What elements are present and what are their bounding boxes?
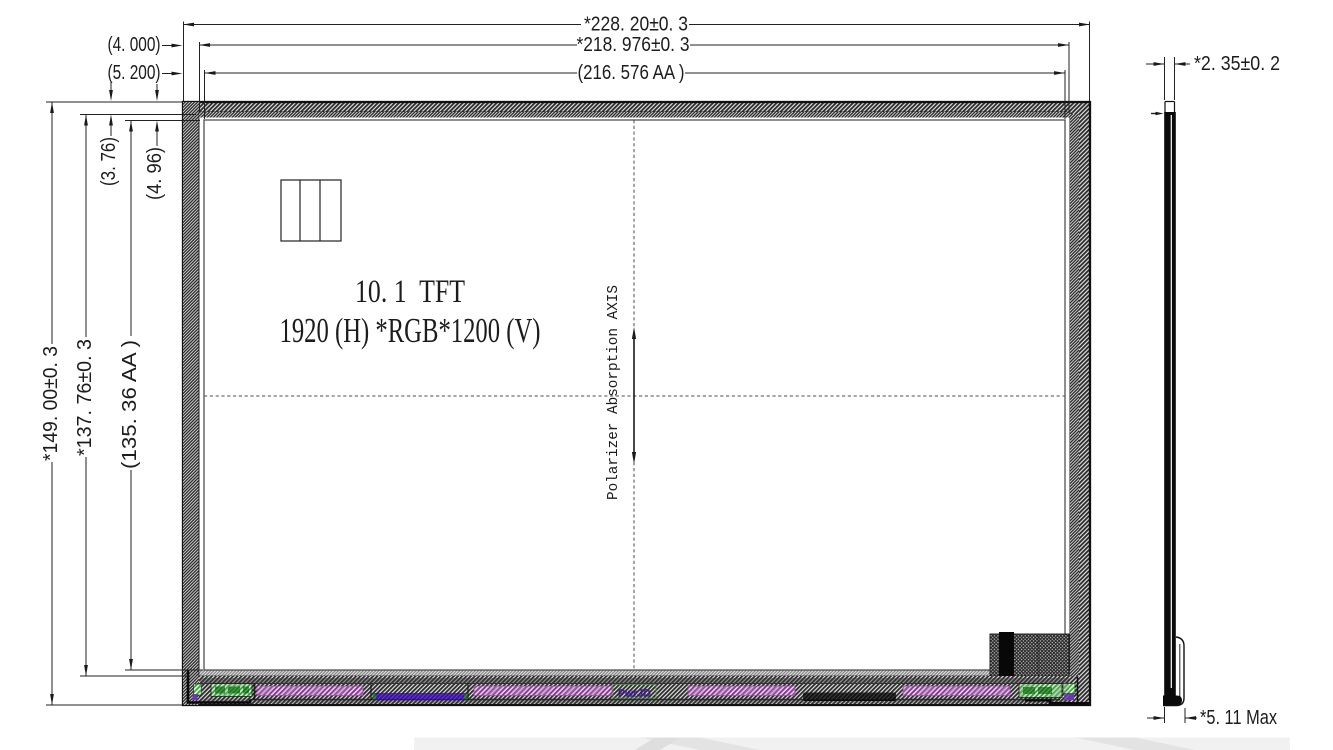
svg-text:*228. 20±0. 3: *228. 20±0. 3 bbox=[584, 14, 688, 36]
svg-text:*137. 76±0. 3: *137. 76±0. 3 bbox=[74, 339, 96, 456]
svg-text:(135. 36 AA ): (135. 36 AA ) bbox=[119, 340, 141, 469]
svg-text:(3. 76): (3. 76) bbox=[98, 137, 120, 186]
svg-text:(5. 200): (5. 200) bbox=[108, 62, 161, 84]
svg-text:*218. 976±0. 3: *218. 976±0. 3 bbox=[577, 34, 690, 56]
svg-text:10. 1 TFT: 10. 1 TFT bbox=[355, 274, 465, 310]
svg-text:Polarizer Absorption AXIS: Polarizer Absorption AXIS bbox=[605, 285, 622, 500]
svg-text:*2. 35±0. 2: *2. 35±0. 2 bbox=[1194, 53, 1280, 75]
svg-text:*149. 00±0. 3: *149. 00±0. 3 bbox=[40, 346, 62, 461]
svg-text:(4. 000): (4. 000) bbox=[108, 34, 161, 56]
svg-text:*5. 11 Max: *5. 11 Max bbox=[1200, 707, 1277, 729]
svg-text:(4. 96): (4. 96) bbox=[144, 147, 166, 200]
svg-text:1920 (H) *RGB*1200 (V): 1920 (H) *RGB*1200 (V) bbox=[280, 311, 541, 350]
svg-text:(216. 576 AA ): (216. 576 AA ) bbox=[578, 62, 685, 84]
